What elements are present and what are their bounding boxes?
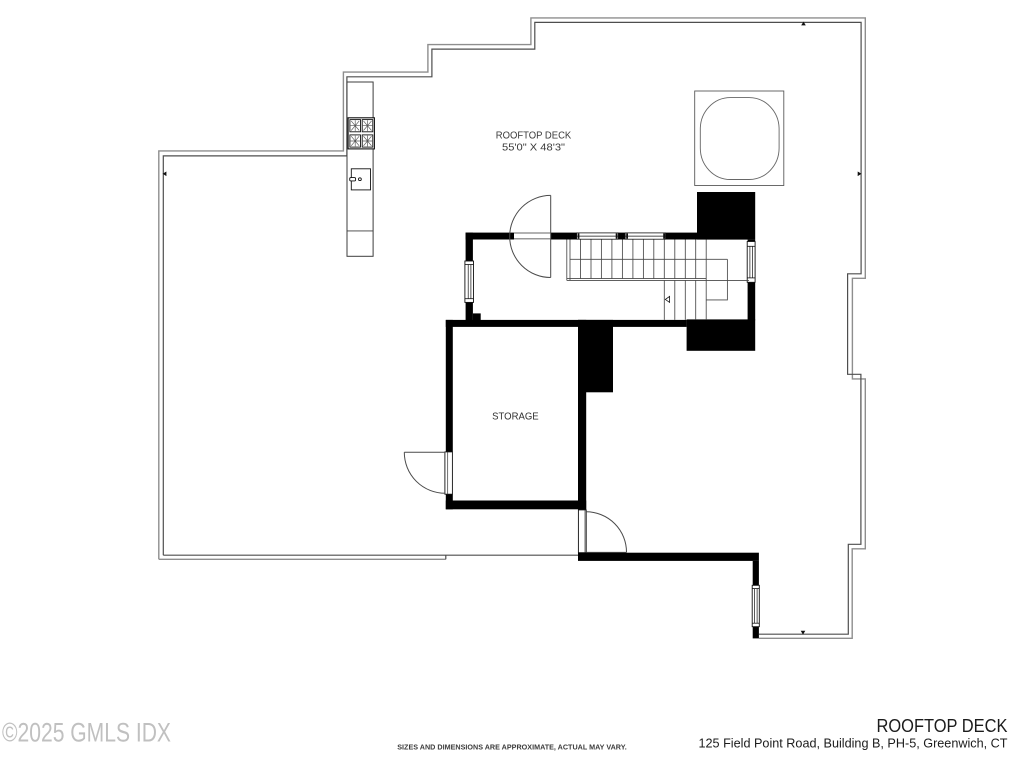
- svg-text:ROOFTOP DECK: ROOFTOP DECK: [496, 130, 572, 142]
- svg-text:55'0" X 48'3": 55'0" X 48'3": [502, 142, 565, 154]
- svg-text:SIZES AND DIMENSIONS ARE APPRO: SIZES AND DIMENSIONS ARE APPROXIMATE, AC…: [397, 742, 627, 751]
- svg-text:STORAGE: STORAGE: [492, 411, 539, 423]
- svg-text:125 Field Point Road, Building: 125 Field Point Road, Building B, PH-5, …: [699, 737, 1008, 751]
- svg-text:©2025 GMLS IDX: ©2025 GMLS IDX: [2, 718, 171, 748]
- svg-text:ROOFTOP DECK: ROOFTOP DECK: [877, 715, 1009, 736]
